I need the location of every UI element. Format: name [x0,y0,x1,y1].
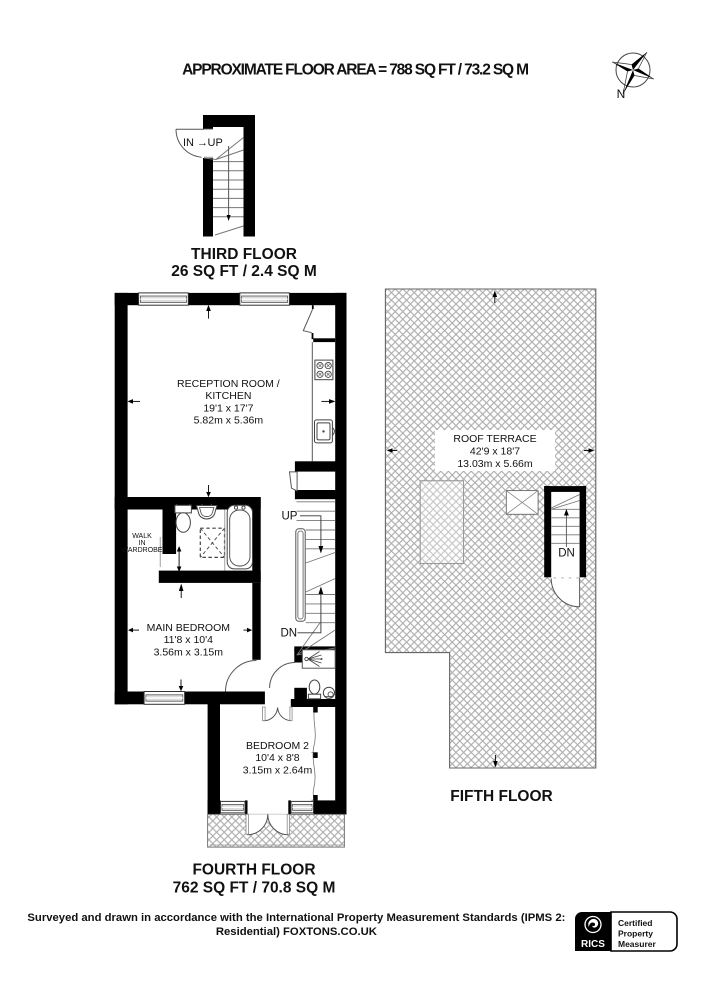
svg-text:MAIN BEDROOM: MAIN BEDROOM [147,622,230,634]
svg-text:3.15m x 2.64m: 3.15m x 2.64m [243,764,313,776]
svg-text:5.82m x 5.36m: 5.82m x 5.36m [194,415,264,427]
svg-text:42'9 x 18'7: 42'9 x 18'7 [470,446,520,458]
svg-text:IN: IN [139,540,146,547]
svg-text:WARDROBE: WARDROBE [122,547,163,554]
svg-text:26 SQ FT / 2.4 SQ M: 26 SQ FT / 2.4 SQ M [171,263,317,280]
svg-text:Surveyed and drawn in accordan: Surveyed and drawn in accordance with th… [27,912,565,924]
svg-text:RICS: RICS [581,939,605,950]
svg-text:Measurer: Measurer [618,939,656,949]
svg-text:THIRD FLOOR: THIRD FLOOR [191,246,297,263]
svg-text:ROOF TERRACE: ROOF TERRACE [453,433,536,445]
svg-text:Certified: Certified [618,918,652,928]
svg-text:KITCHEN: KITCHEN [205,390,251,402]
svg-text:IN: IN [183,137,194,149]
svg-text:Residential) FOXTONS.CO.UK: Residential) FOXTONS.CO.UK [216,926,378,938]
svg-text:Property: Property [618,929,653,939]
svg-text:FIFTH FLOOR: FIFTH FLOOR [450,788,552,805]
svg-text:11'8 x 10'4: 11'8 x 10'4 [164,634,214,646]
svg-text:UP: UP [282,511,298,523]
svg-text:UP: UP [208,137,223,149]
svg-text:19'1 x 17'7: 19'1 x 17'7 [203,402,253,414]
svg-text:762 SQ FT / 70.8 SQ M: 762 SQ FT / 70.8 SQ M [173,880,336,897]
svg-text:DN: DN [558,548,575,560]
svg-text:13.03m x 5.66m: 13.03m x 5.66m [457,458,533,470]
svg-text:APPROXIMATE FLOOR AREA = 788 S: APPROXIMATE FLOOR AREA = 788 SQ FT / 73.… [182,61,528,78]
svg-text:N: N [617,87,626,101]
svg-text:→: → [197,137,208,149]
svg-text:RECEPTION ROOM /: RECEPTION ROOM / [177,378,280,390]
svg-text:FOURTH FLOOR: FOURTH FLOOR [192,862,315,879]
svg-text:3.56m x 3.15m: 3.56m x 3.15m [154,646,224,658]
svg-text:DN: DN [281,628,298,640]
svg-text:WALK: WALK [132,533,152,540]
svg-text:BEDROOM 2: BEDROOM 2 [246,740,309,752]
svg-text:10'4 x 8'8: 10'4 x 8'8 [255,752,299,764]
